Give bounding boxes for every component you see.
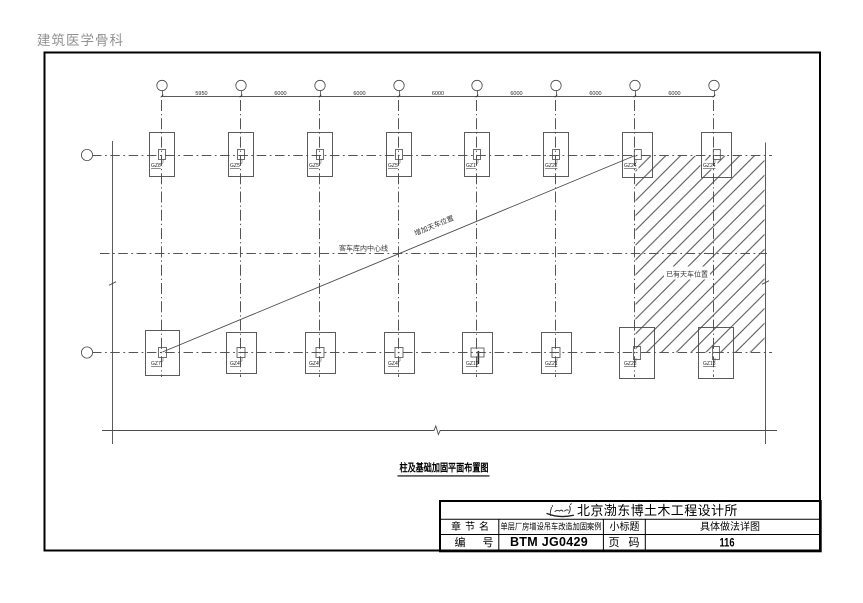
svg-text:GZ5: GZ5 <box>388 163 398 169</box>
svg-text:6000: 6000 <box>432 91 444 97</box>
svg-text:页: 页 <box>609 537 620 549</box>
svg-text:116: 116 <box>720 536 735 550</box>
svg-text:GZ4: GZ4 <box>388 361 398 367</box>
svg-text:号: 号 <box>483 536 494 549</box>
svg-text:GZ23: GZ23 <box>624 361 637 367</box>
svg-text:GZ5: GZ5 <box>309 163 319 169</box>
svg-text:北京渤东博土木工程设计所: 北京渤东博土木工程设计所 <box>577 503 738 518</box>
svg-text:小标题: 小标题 <box>610 521 640 533</box>
svg-text:6000: 6000 <box>589 91 601 97</box>
svg-text:GZ8: GZ8 <box>151 163 161 169</box>
svg-text:GZ22: GZ22 <box>545 163 558 169</box>
svg-text:编: 编 <box>455 535 466 549</box>
svg-text:GZ13: GZ13 <box>703 361 716 367</box>
svg-text:GZ7: GZ7 <box>151 361 161 367</box>
svg-text:码: 码 <box>629 536 640 549</box>
svg-text:单层厂房增设吊车改造加固案例: 单层厂房增设吊车改造加固案例 <box>501 522 602 532</box>
svg-text:柱及基础加固平面布置图: 柱及基础加固平面布置图 <box>400 461 489 474</box>
svg-text:增加天车位置: 增加天车位置 <box>413 213 455 237</box>
svg-text:6000: 6000 <box>274 91 286 97</box>
svg-text:客车库内中心线: 客车库内中心线 <box>339 244 388 253</box>
svg-text:5950: 5950 <box>195 91 207 97</box>
svg-text:GZ5: GZ5 <box>230 163 240 169</box>
svg-text:GZ1: GZ1 <box>466 163 476 169</box>
svg-text:GZ24: GZ24 <box>624 163 637 169</box>
svg-text:GZ4: GZ4 <box>230 361 240 367</box>
svg-text:GZ24: GZ24 <box>703 163 716 169</box>
svg-text:GZ19: GZ19 <box>466 361 479 367</box>
svg-text:GZ4: GZ4 <box>309 361 319 367</box>
svg-text:BTM JG0429: BTM JG0429 <box>510 535 588 549</box>
svg-text:6000: 6000 <box>668 91 680 97</box>
svg-text:6000: 6000 <box>353 91 365 97</box>
svg-text:GZ21: GZ21 <box>545 361 558 367</box>
svg-text:建筑医学骨科: 建筑医学骨科 <box>37 33 124 48</box>
svg-text:已有天车位置: 已有天车位置 <box>666 270 708 279</box>
svg-text:章节名: 章节名 <box>451 520 493 533</box>
svg-text:6000: 6000 <box>510 91 522 97</box>
svg-text:具体做法详图: 具体做法详图 <box>700 520 760 533</box>
